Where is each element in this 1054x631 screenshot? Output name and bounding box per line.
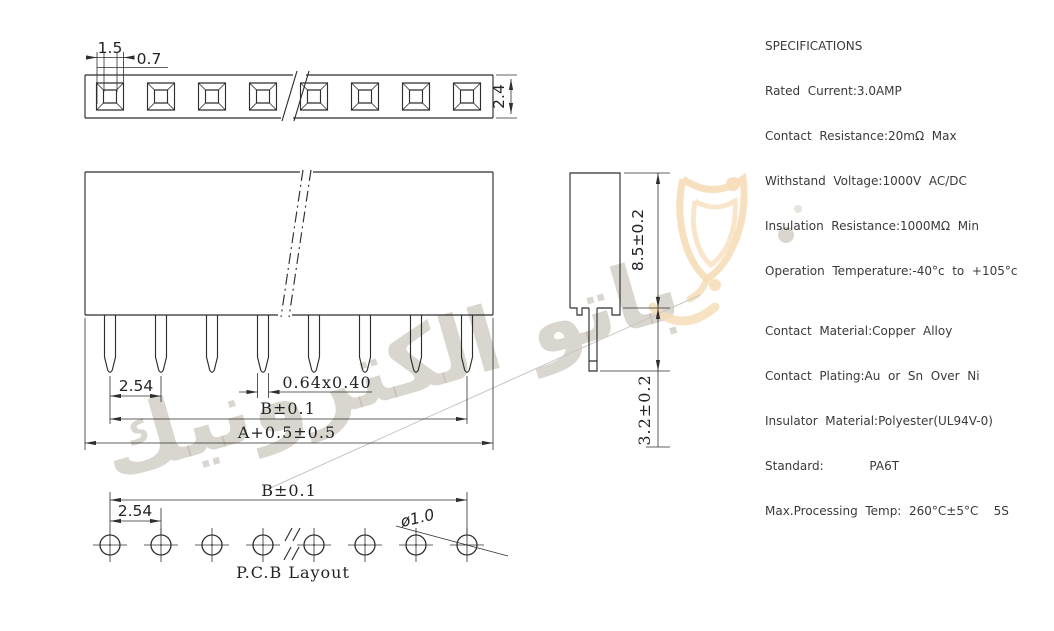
dim-pcb-pitch: 2.54 — [118, 502, 153, 520]
spec-line: Contact Plating:Au or Sn Over Ni — [765, 369, 1017, 384]
dim-strip-height: 2.4 — [490, 84, 508, 109]
dim-body-height: 8.5±0.2 — [629, 209, 647, 271]
dim-span: B±0.1 — [260, 399, 316, 418]
side-view: 8.5±0.2 3.2±0.2 — [570, 173, 670, 447]
spec-line: Rated Current:3.0AMP — [765, 84, 1017, 99]
dim-overall: A+0.5±0.5 — [237, 423, 336, 442]
datasheet-page: باتو الكترونيك — [0, 0, 1054, 631]
dim-hole-diameter: ø1.0 — [398, 506, 436, 531]
spec-line: Insulator Material:Polyester(UL94V-0) — [765, 414, 1017, 429]
side-view-dimensions: 8.5±0.2 3.2±0.2 — [600, 173, 670, 447]
spec-line: Withstand Voltage:1000V AC/DC — [765, 174, 1017, 189]
spec-line: Standard: PA6T — [765, 459, 1017, 474]
spec-line: Contact Resistance:20mΩ Max — [765, 129, 1017, 144]
pcb-layout: B±0.1 2.54 ø1.0 P.C.B Layout — [93, 481, 508, 582]
pcb-layout-label: P.C.B Layout — [236, 563, 350, 582]
dim-pin-length: 3.2±0.2 — [635, 374, 654, 445]
dim-pcb-span: B±0.1 — [261, 481, 317, 500]
spec-line: Contact Material:Copper Alloy — [765, 324, 1017, 339]
front-view: 2.54 0.64x0.40 B±0.1 A+0.5±0.5 — [85, 170, 493, 450]
specifications-block: SPECIFICATIONS Rated Current:3.0AMP Cont… — [765, 9, 1017, 549]
dim-pitch: 2.54 — [119, 377, 154, 395]
front-view-dimensions: 2.54 0.64x0.40 B±0.1 A+0.5±0.5 — [85, 318, 493, 450]
dim-wall: 0.7 — [137, 50, 162, 68]
spec-line: Max.Processing Temp: 260°C±5°C 5S — [765, 504, 1017, 519]
specifications-title: SPECIFICATIONS — [765, 39, 1017, 54]
spec-line: Operation Temperature:-40°c to +105°c — [765, 264, 1017, 279]
spec-line: Insulation Resistance:1000MΩ Min — [765, 219, 1017, 234]
top-view-dimensions: 1.5 0.7 2.4 — [86, 39, 517, 118]
dim-pin-section: 0.64x0.40 — [282, 373, 371, 392]
top-view: 1.5 0.7 2.4 — [85, 39, 517, 121]
dim-hole-size: 1.5 — [98, 39, 123, 57]
